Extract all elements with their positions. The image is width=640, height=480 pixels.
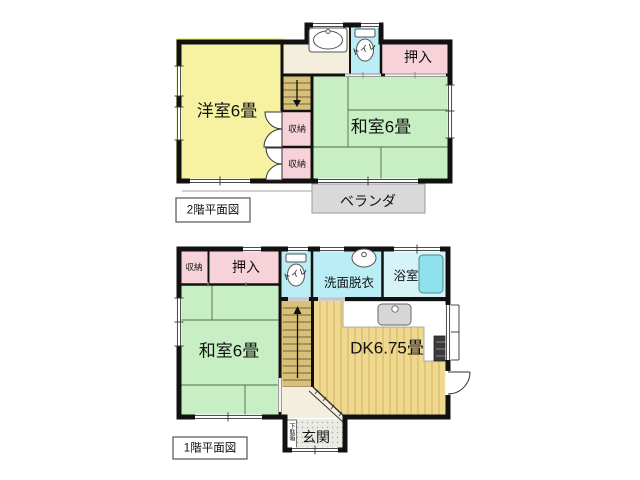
floor1-plan: 収納 押入 洗面脱衣 浴室 和室6畳: [173, 245, 470, 460]
floorplan-svg: 洋室6畳 押入 和室6畳: [0, 0, 640, 480]
floor2-label-box: 2階平面図: [176, 198, 250, 222]
window-above-oshiire-f1: [243, 246, 261, 251]
room-tatami-6-f2: 和室6畳: [311, 74, 452, 183]
room-label-tatami-f1: 和室6畳: [199, 342, 259, 361]
floorplan-canvas: 洋室6畳 押入 和室6畳: [0, 0, 640, 480]
bathroom-f1: 浴室: [383, 250, 448, 297]
stairs-f2: [281, 74, 313, 112]
room-western-6-f2: 洋室6畳: [176, 38, 284, 183]
closet-storage2-f2: 収納: [281, 148, 313, 183]
closet-storage-f1: 収納: [180, 250, 209, 284]
back-door-dk: [445, 371, 470, 395]
room-label-storage-f1: 収納: [185, 262, 202, 272]
room-label-western-f2: 洋室6畳: [197, 102, 257, 121]
room-label-washroom: 洗面脱衣: [324, 275, 375, 290]
window-washroom-f1: [320, 246, 344, 251]
room-label-bathroom: 浴室: [393, 268, 418, 283]
washbasin-icon-f1: [352, 249, 376, 267]
washbasin-icon-f2: [309, 28, 347, 52]
window-toilet-f1: [288, 246, 308, 251]
closet-oshiire-f1: 押入: [209, 250, 280, 284]
closet-oshiire-f2: 押入: [380, 39, 452, 77]
window-toilet-f2: [361, 22, 379, 27]
door-toilet-f1: [288, 297, 309, 301]
floor2-label: 2階平面図: [187, 203, 239, 217]
room-label-dk: DK6.75畳: [350, 339, 424, 358]
room-label-storage2-f2: 収納: [288, 158, 306, 169]
room-label-storage1-f2: 収納: [288, 123, 306, 134]
room-label-tatami-f2: 和室6畳: [351, 118, 411, 137]
stairs-f1: [281, 301, 312, 387]
bathtub-icon: [419, 255, 443, 293]
closet-storage1-f2: 収納: [281, 112, 313, 148]
window-east-dk: [445, 305, 459, 360]
room-label-oshiire-f2: 押入: [404, 49, 432, 65]
room-label-genkan: 玄関: [302, 429, 330, 445]
floor1-label: 1階平面図: [184, 441, 236, 455]
room-tatami-6-f1: 和室6畳: [180, 285, 280, 417]
room-label-oshiire-f1: 押入: [232, 259, 260, 275]
window-washstand-f2: [313, 22, 343, 27]
door-washroom-f1: [318, 297, 345, 301]
sliding-door-tatami-f1: [278, 378, 282, 412]
floor2-plan: 洋室6畳 押入 和室6畳: [175, 22, 455, 222]
shoe-cabinet-label: 下駄箱: [288, 423, 295, 442]
dk-room-f1: DK6.75畳: [313, 301, 448, 415]
kitchen-sink-icon: [378, 304, 411, 325]
floor1-label-box: 1階平面図: [173, 437, 247, 459]
room-label-veranda: ベランダ: [340, 193, 396, 209]
